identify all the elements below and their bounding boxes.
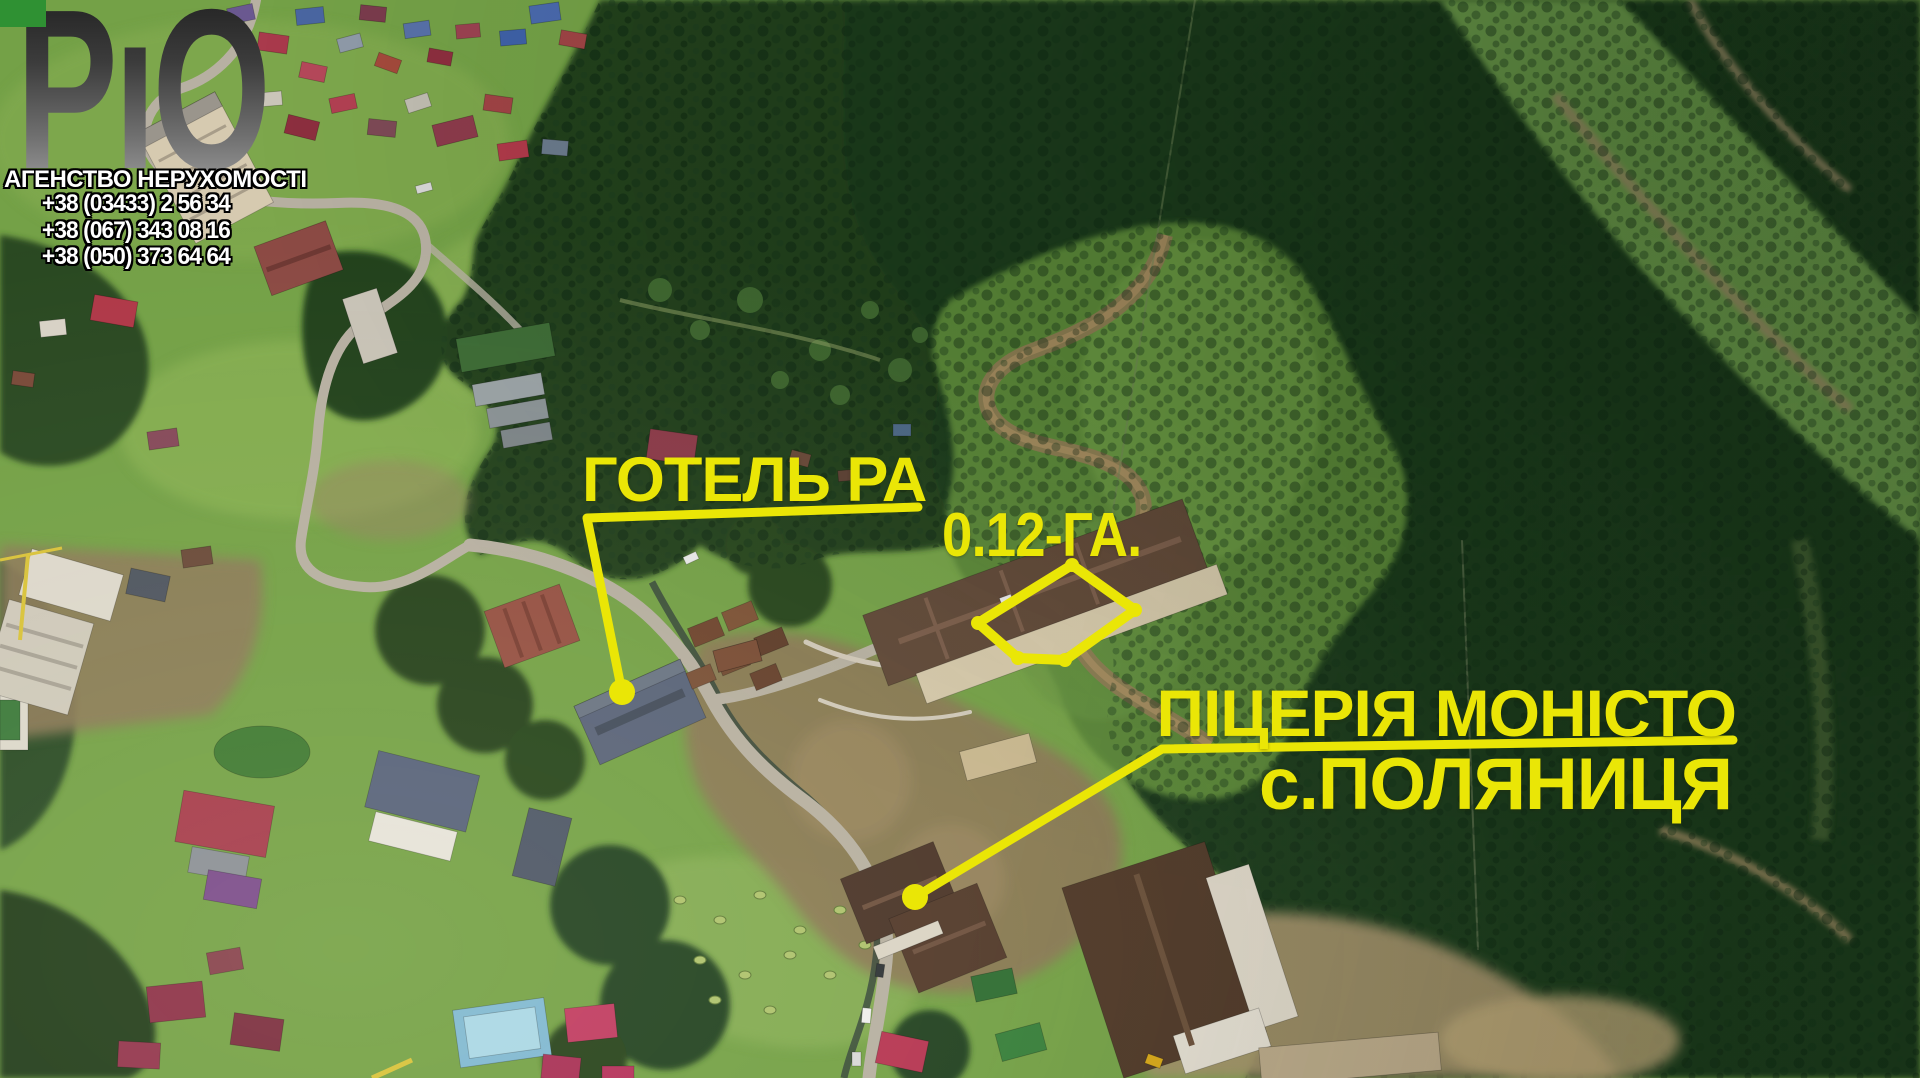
aerial-ad-image: РıО АГЕНСТВО НЕРУХОМОСТІ +38 (03433) 2 5…: [0, 0, 1920, 1078]
pizzeria-label-block: ПІЦЕРІЯ МОНІСТО с.ПОЛЯНИЦЯ: [1157, 678, 1736, 822]
phone-number: +38 (03433) 2 56 34: [0, 191, 272, 218]
phone-number: +38 (050) 373 64 64: [0, 244, 272, 271]
hotel-ra-pointer-line: [587, 507, 918, 692]
pizzeria-marker-dot: [902, 884, 928, 910]
pizzeria-label: ПІЦЕРІЯ МОНІСТО: [1157, 678, 1736, 748]
logo-green-dot: [0, 0, 46, 27]
plot-area-label: 0.12-ГА.: [942, 500, 1141, 571]
phone-number: +38 (067) 343 08 16: [0, 218, 272, 245]
annotation-dots: [609, 558, 1142, 910]
village-label: с.ПОЛЯНИЦЯ: [1157, 748, 1736, 822]
phone-list: +38 (03433) 2 56 34 +38 (067) 343 08 16 …: [0, 191, 272, 271]
plot-outline: [978, 565, 1135, 660]
hotel-ra-marker-dot: [609, 679, 635, 705]
hotel-ra-label: ГОТЕЛЬ РА: [582, 444, 926, 516]
